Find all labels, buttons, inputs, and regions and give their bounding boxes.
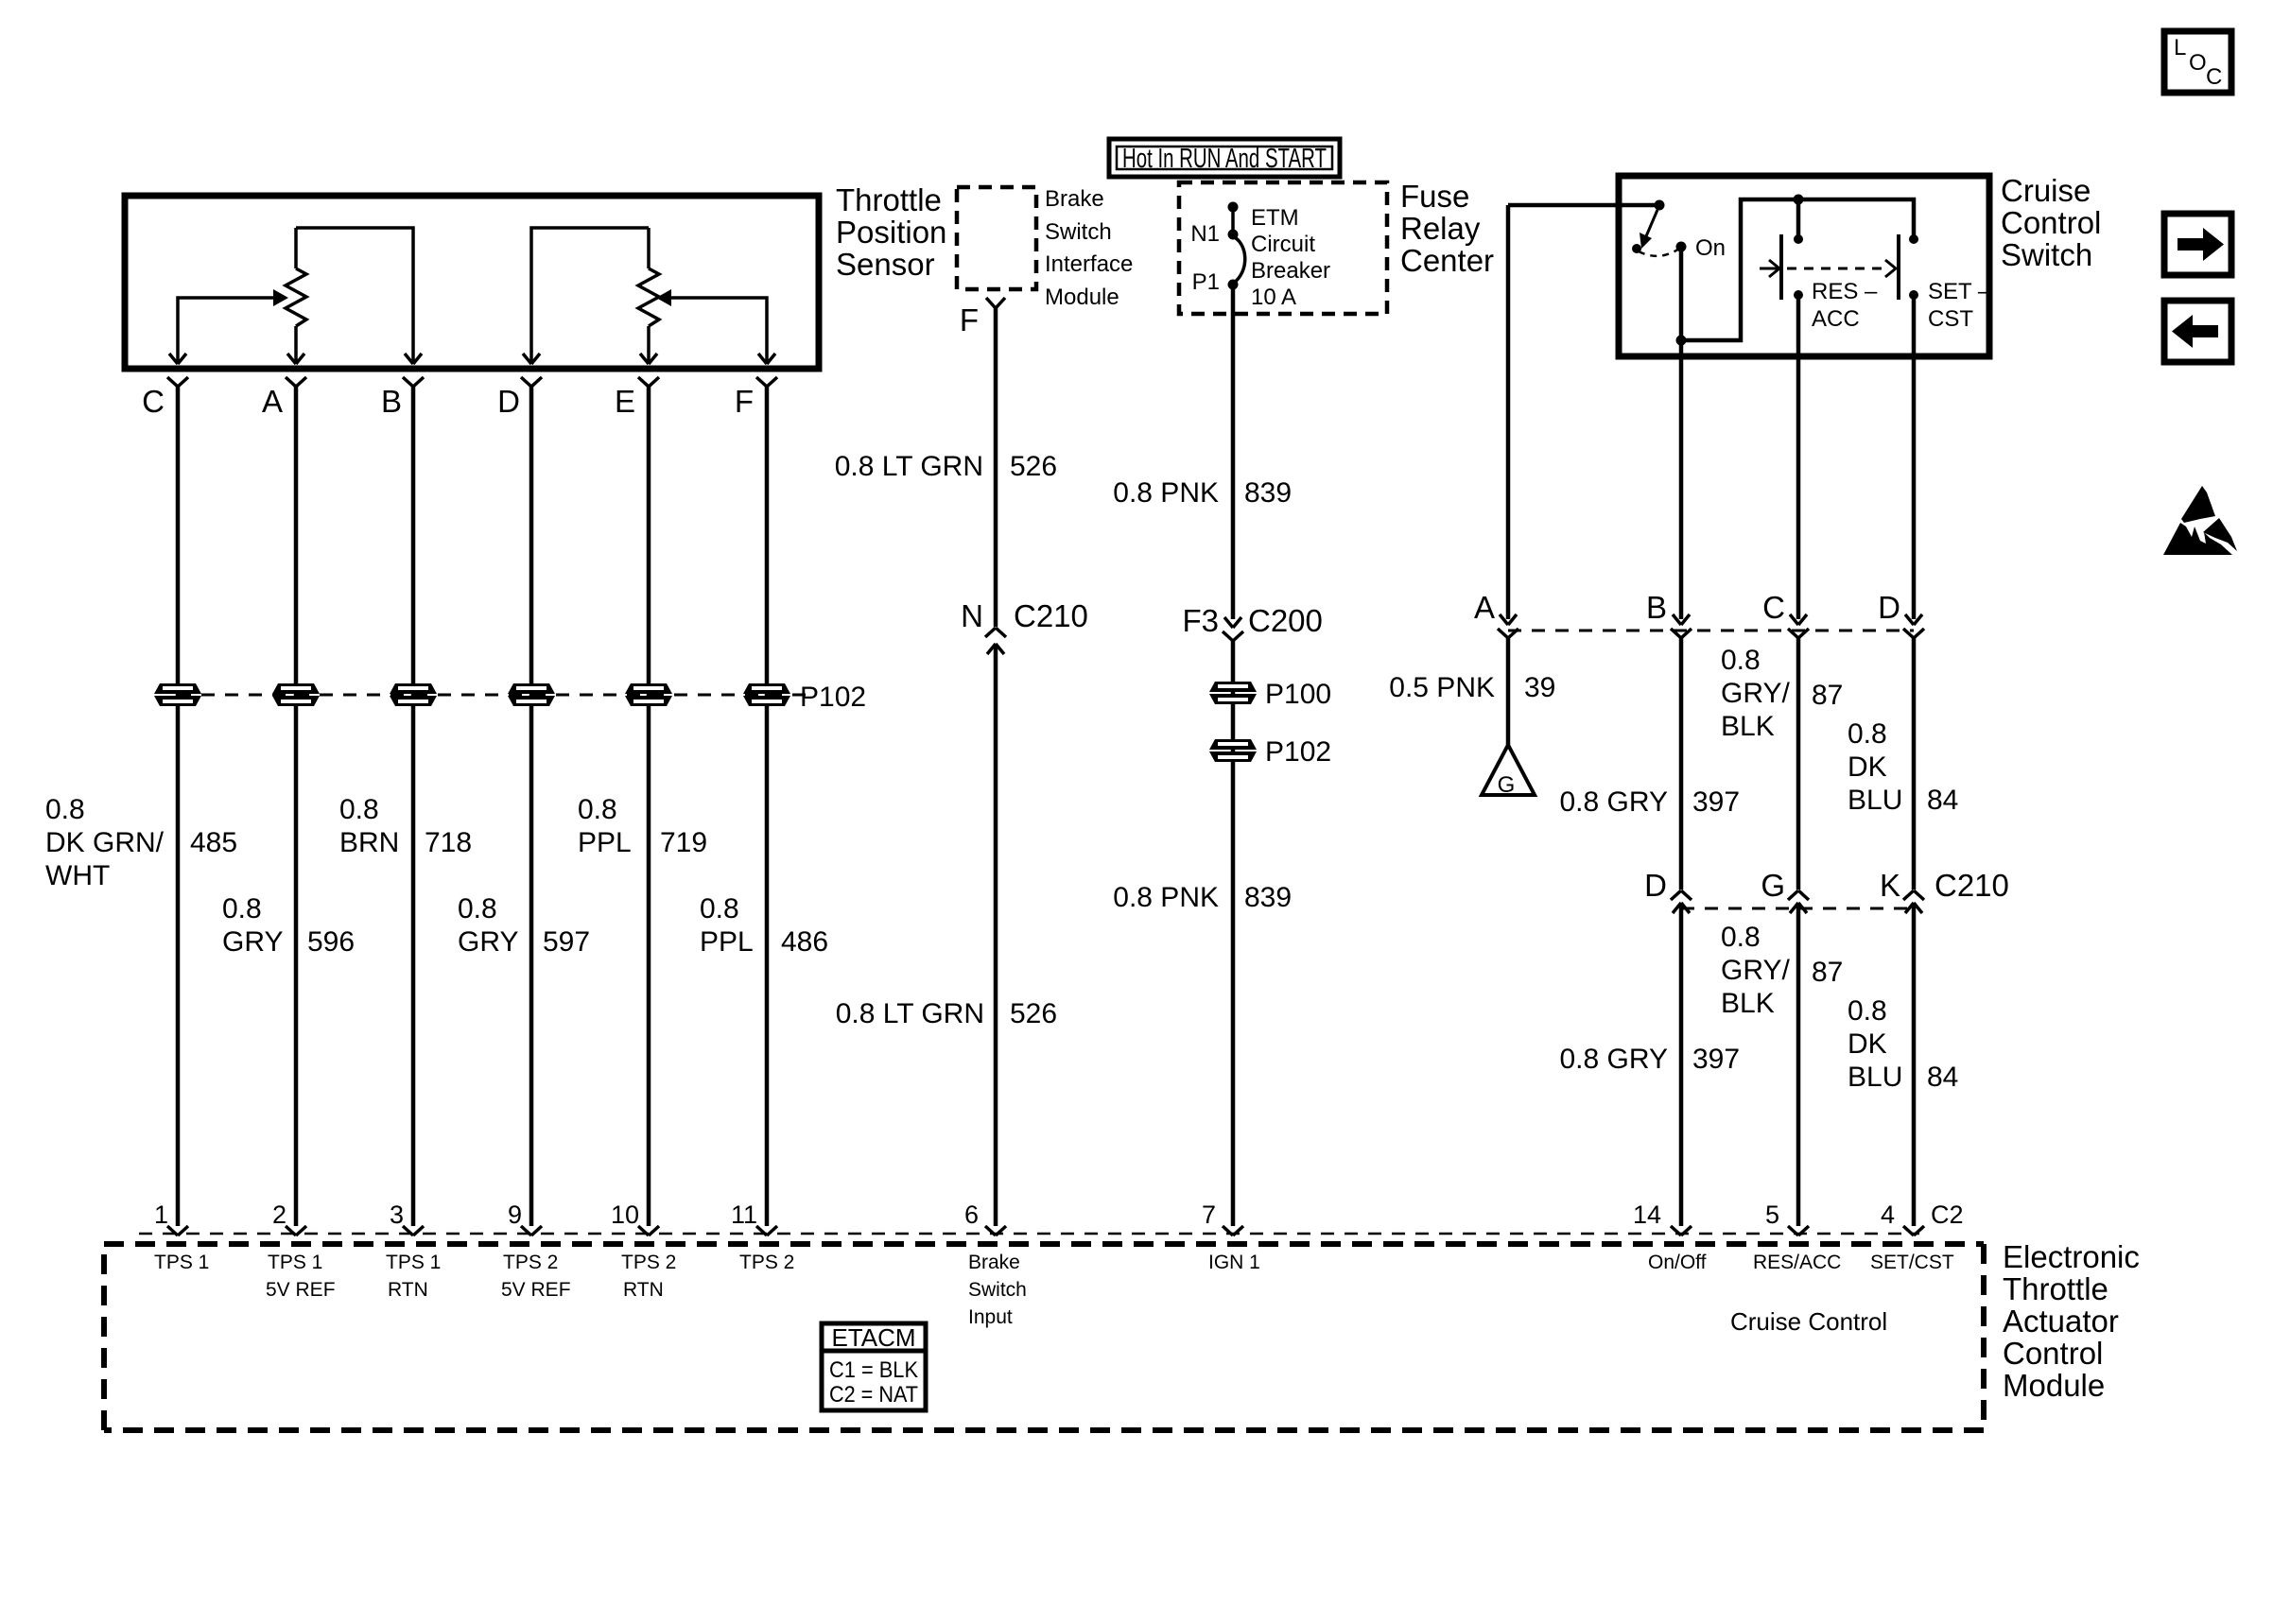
svg-text:3: 3 xyxy=(390,1201,404,1229)
svg-text:0.8: 0.8 xyxy=(1721,922,1761,953)
svg-text:P100: P100 xyxy=(1265,679,1331,710)
svg-text:C1 = BLK: C1 = BLK xyxy=(829,1357,918,1383)
svg-text:GRY/: GRY/ xyxy=(1721,678,1790,709)
svg-text:597: 597 xyxy=(543,926,590,958)
svg-text:O: O xyxy=(2189,50,2207,76)
svg-text:0.8: 0.8 xyxy=(700,893,739,924)
svg-text:G: G xyxy=(1498,772,1516,798)
svg-text:TPS 1: TPS 1 xyxy=(154,1252,209,1273)
svg-text:TPS 2: TPS 2 xyxy=(621,1252,676,1273)
svg-text:0.8: 0.8 xyxy=(1848,995,1887,1027)
svg-text:RES –: RES – xyxy=(1812,279,1878,304)
svg-text:0.8 LT GRN: 0.8 LT GRN xyxy=(835,451,983,482)
svg-text:D: D xyxy=(497,384,520,419)
svg-text:0.8: 0.8 xyxy=(1848,718,1887,750)
svg-text:C210: C210 xyxy=(1014,598,1088,633)
svg-text:PPL: PPL xyxy=(700,926,754,958)
svg-text:0.8 GRY: 0.8 GRY xyxy=(1559,1044,1668,1075)
svg-text:Center: Center xyxy=(1400,243,1494,278)
svg-text:7: 7 xyxy=(1202,1201,1216,1229)
svg-text:718: 718 xyxy=(425,827,472,858)
svg-text:RES/ACC: RES/ACC xyxy=(1753,1252,1841,1273)
svg-text:TPS 1: TPS 1 xyxy=(268,1252,322,1273)
svg-text:G: G xyxy=(1761,868,1785,903)
svg-text:F: F xyxy=(735,384,754,419)
svg-text:C: C xyxy=(2206,64,2222,90)
svg-text:5V REF: 5V REF xyxy=(501,1279,571,1301)
svg-text:0.8 PNK: 0.8 PNK xyxy=(1113,477,1219,509)
svg-text:Cruise: Cruise xyxy=(2001,173,2091,208)
svg-text:839: 839 xyxy=(1244,882,1292,913)
svg-text:Control: Control xyxy=(2003,1336,2103,1371)
svg-text:Position: Position xyxy=(836,215,946,250)
svg-text:Breaker: Breaker xyxy=(1251,258,1330,284)
svg-text:Control: Control xyxy=(2001,205,2101,240)
svg-text:Cruise Control: Cruise Control xyxy=(1730,1307,1887,1336)
svg-text:BLK: BLK xyxy=(1721,711,1775,742)
svg-text:DK: DK xyxy=(1848,752,1887,783)
svg-text:C2: C2 xyxy=(1931,1201,1964,1229)
svg-text:0.8: 0.8 xyxy=(339,794,379,825)
svg-text:ACC: ACC xyxy=(1812,306,1860,332)
svg-text:5V REF: 5V REF xyxy=(266,1279,336,1301)
svg-text:B: B xyxy=(1646,590,1667,625)
svg-text:10: 10 xyxy=(611,1201,639,1229)
svg-text:ETACM: ETACM xyxy=(831,1323,915,1352)
svg-text:A: A xyxy=(1474,590,1495,625)
svg-text:ETM: ETM xyxy=(1251,205,1299,231)
svg-text:0.8: 0.8 xyxy=(578,794,617,825)
svg-text:0.8 GRY: 0.8 GRY xyxy=(1559,786,1668,818)
svg-text:GRY/: GRY/ xyxy=(1721,955,1790,986)
svg-text:C2 = NAT: C2 = NAT xyxy=(829,1382,918,1408)
svg-text:6: 6 xyxy=(964,1201,979,1229)
svg-text:Module: Module xyxy=(1045,285,1119,310)
svg-text:485: 485 xyxy=(190,827,237,858)
svg-text:Throttle: Throttle xyxy=(836,182,942,217)
svg-text:Switch: Switch xyxy=(968,1279,1027,1301)
svg-text:5: 5 xyxy=(1765,1201,1779,1229)
svg-text:84: 84 xyxy=(1927,785,1958,816)
svg-text:BLU: BLU xyxy=(1848,785,1902,816)
svg-text:C210: C210 xyxy=(1935,868,2009,903)
svg-text:Hot In RUN And START: Hot In RUN And START xyxy=(1122,144,1327,174)
svg-text:B: B xyxy=(381,384,402,419)
svg-text:Input: Input xyxy=(968,1306,1013,1328)
svg-text:2: 2 xyxy=(272,1201,286,1229)
svg-text:SET –: SET – xyxy=(1928,279,1991,304)
svg-text:84: 84 xyxy=(1927,1062,1958,1093)
svg-text:0.8: 0.8 xyxy=(45,794,85,825)
svg-text:0.8 LT GRN: 0.8 LT GRN xyxy=(836,998,984,1029)
svg-text:RTN: RTN xyxy=(388,1279,428,1301)
svg-text:DK: DK xyxy=(1848,1028,1887,1060)
svg-text:1: 1 xyxy=(154,1201,168,1229)
svg-text:Interface: Interface xyxy=(1045,251,1133,277)
svg-text:Brake: Brake xyxy=(968,1252,1020,1273)
svg-text:Brake: Brake xyxy=(1045,186,1104,212)
svg-text:C: C xyxy=(142,384,165,419)
svg-text:GRY: GRY xyxy=(222,926,283,958)
svg-text:Circuit: Circuit xyxy=(1251,232,1315,257)
svg-text:K: K xyxy=(1880,868,1900,903)
svg-text:On: On xyxy=(1695,235,1726,261)
svg-text:526: 526 xyxy=(1010,998,1057,1029)
svg-text:DK GRN/: DK GRN/ xyxy=(45,827,165,858)
svg-text:F: F xyxy=(960,302,979,337)
svg-text:P1: P1 xyxy=(1192,269,1220,295)
svg-text:Actuator: Actuator xyxy=(2003,1304,2119,1339)
svg-text:C: C xyxy=(1762,590,1785,625)
svg-text:RTN: RTN xyxy=(623,1279,664,1301)
svg-text:10 A: 10 A xyxy=(1251,285,1296,310)
svg-text:SET/CST: SET/CST xyxy=(1870,1252,1954,1273)
svg-text:397: 397 xyxy=(1692,786,1740,818)
svg-text:IGN 1: IGN 1 xyxy=(1208,1252,1260,1273)
svg-text:0.8: 0.8 xyxy=(458,893,497,924)
svg-text:Relay: Relay xyxy=(1400,211,1481,246)
svg-text:596: 596 xyxy=(307,926,355,958)
svg-text:L: L xyxy=(2174,35,2186,60)
svg-text:WHT: WHT xyxy=(45,860,110,891)
svg-text:TPS 2: TPS 2 xyxy=(503,1252,558,1273)
svg-text:PPL: PPL xyxy=(578,827,632,858)
svg-text:9: 9 xyxy=(508,1201,522,1229)
svg-text:P102: P102 xyxy=(1265,736,1331,768)
svg-text:N: N xyxy=(961,598,983,633)
svg-text:CST: CST xyxy=(1928,306,1973,332)
svg-text:839: 839 xyxy=(1244,477,1292,509)
svg-text:Switch: Switch xyxy=(2001,237,2092,272)
svg-text:D: D xyxy=(1878,590,1900,625)
svg-text:4: 4 xyxy=(1881,1201,1895,1229)
svg-text:E: E xyxy=(615,384,635,419)
svg-text:BRN: BRN xyxy=(339,827,399,858)
svg-text:GRY: GRY xyxy=(458,926,518,958)
svg-text:Electronic: Electronic xyxy=(2003,1239,2140,1274)
svg-text:Sensor: Sensor xyxy=(836,247,935,282)
svg-text:0.8 PNK: 0.8 PNK xyxy=(1113,882,1219,913)
svg-text:486: 486 xyxy=(781,926,828,958)
svg-text:Throttle: Throttle xyxy=(2003,1271,2108,1306)
svg-text:39: 39 xyxy=(1524,672,1555,703)
svg-text:N1: N1 xyxy=(1190,221,1220,247)
svg-text:87: 87 xyxy=(1812,680,1843,711)
svg-text:526: 526 xyxy=(1010,451,1057,482)
svg-text:719: 719 xyxy=(660,827,707,858)
svg-text:BLK: BLK xyxy=(1721,988,1775,1019)
svg-text:397: 397 xyxy=(1692,1044,1740,1075)
svg-text:TPS 2: TPS 2 xyxy=(739,1252,794,1273)
svg-text:11: 11 xyxy=(731,1201,757,1229)
svg-text:D: D xyxy=(1644,868,1667,903)
svg-text:On/Off: On/Off xyxy=(1648,1252,1707,1273)
svg-text:F3: F3 xyxy=(1182,603,1219,638)
svg-text:C200: C200 xyxy=(1248,603,1323,638)
svg-text:TPS 1: TPS 1 xyxy=(386,1252,441,1273)
svg-text:87: 87 xyxy=(1812,957,1843,988)
svg-text:Module: Module xyxy=(2003,1368,2105,1403)
svg-text:Fuse: Fuse xyxy=(1400,179,1469,214)
svg-text:P102: P102 xyxy=(800,682,866,713)
svg-text:BLU: BLU xyxy=(1848,1062,1902,1093)
svg-text:0.5 PNK: 0.5 PNK xyxy=(1389,672,1495,703)
svg-text:0.8: 0.8 xyxy=(222,893,262,924)
svg-text:14: 14 xyxy=(1633,1201,1661,1229)
svg-text:A: A xyxy=(262,384,283,419)
svg-text:0.8: 0.8 xyxy=(1721,645,1761,676)
svg-text:Switch: Switch xyxy=(1045,219,1112,245)
